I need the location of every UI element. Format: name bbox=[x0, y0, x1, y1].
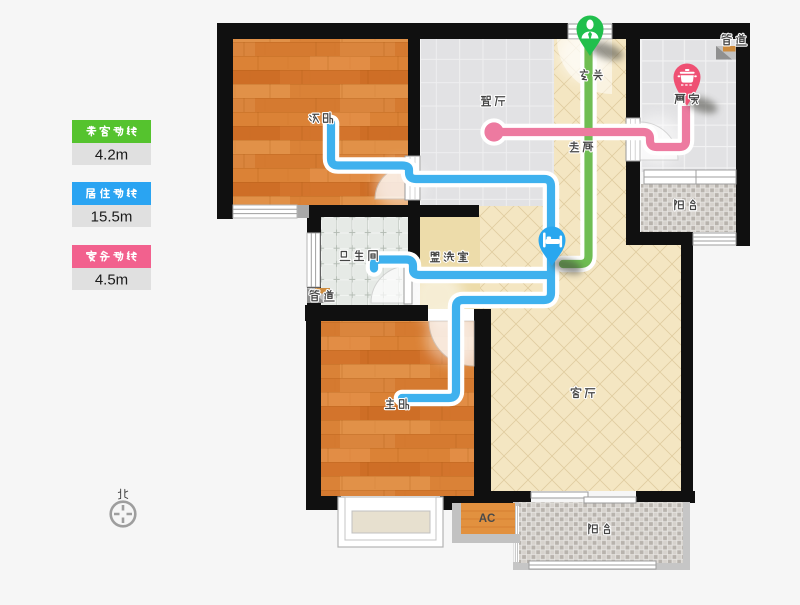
svg-text:4.2m: 4.2m bbox=[95, 147, 128, 164]
svg-text:15.5m: 15.5m bbox=[91, 209, 133, 226]
svg-text:4.5m: 4.5m bbox=[95, 272, 128, 289]
svg-text:AC: AC bbox=[479, 513, 496, 525]
